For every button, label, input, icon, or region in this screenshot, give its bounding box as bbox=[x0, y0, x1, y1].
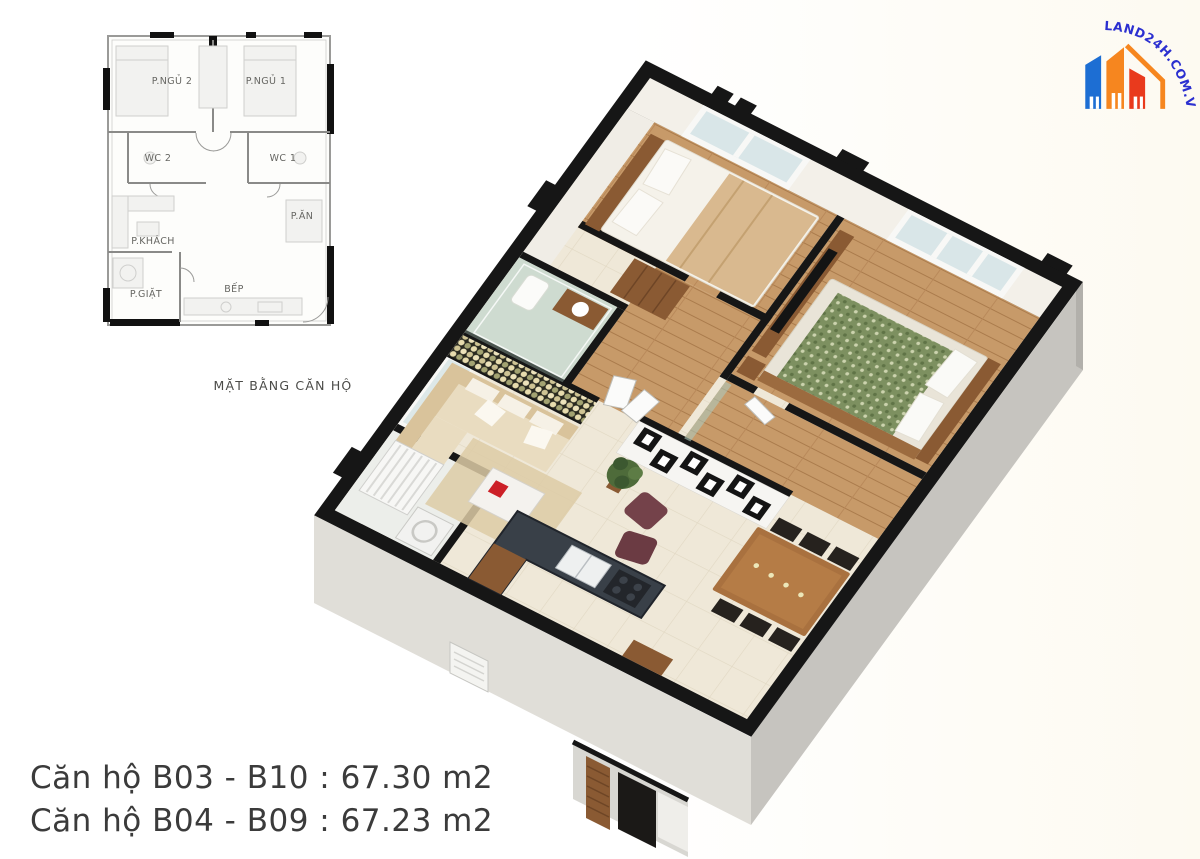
unit-area-line-1: Căn hộ B03 - B10 : 67.30 m2 bbox=[30, 760, 493, 796]
room-label-wc-1: WC 1 bbox=[270, 153, 297, 164]
exterior-corner-east bbox=[1076, 282, 1083, 370]
room-label-bedroom-2: P.NGỦ 2 bbox=[152, 75, 193, 87]
apartment-3d-render bbox=[305, 48, 1088, 857]
unit-area-line-2: Căn hộ B04 - B09 : 67.23 m2 bbox=[30, 803, 493, 839]
room-label-dining: P.ĂN bbox=[291, 210, 313, 222]
floor-plan-sheet: P.NGỦ 2 P.NGỦ 1 WC 2 WC 1 P.ĂN P.KHÁCH P… bbox=[0, 0, 1200, 859]
plan-caption: MẶT BẰNG CĂN HỘ bbox=[214, 377, 353, 393]
room-label-bedroom-1: P.NGỦ 1 bbox=[246, 75, 287, 87]
floor-plan-2d: P.NGỦ 2 P.NGỦ 1 WC 2 WC 1 P.ĂN P.KHÁCH P… bbox=[103, 32, 352, 393]
logo-building-icon bbox=[1085, 46, 1162, 109]
sheet-svg: P.NGỦ 2 P.NGỦ 1 WC 2 WC 1 P.ĂN P.KHÁCH P… bbox=[0, 0, 1200, 859]
room-label-laundry: P.GIẶT bbox=[130, 288, 162, 300]
room-label-wc-2: WC 2 bbox=[145, 153, 172, 164]
room-label-kitchen: BẾP bbox=[224, 283, 243, 295]
room-label-living: P.KHÁCH bbox=[131, 235, 175, 247]
